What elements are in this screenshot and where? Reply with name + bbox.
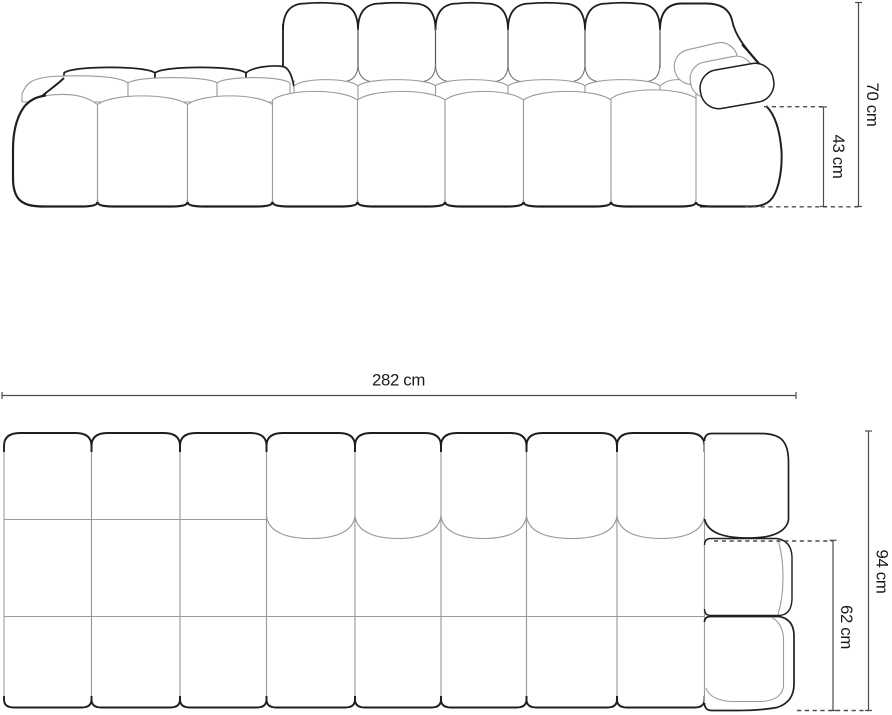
svg-text:62 cm: 62 cm — [837, 605, 856, 649]
svg-text:43 cm: 43 cm — [829, 135, 848, 179]
svg-text:282 cm: 282 cm — [372, 370, 425, 389]
svg-text:70 cm: 70 cm — [863, 83, 882, 127]
svg-text:94 cm: 94 cm — [873, 550, 892, 594]
